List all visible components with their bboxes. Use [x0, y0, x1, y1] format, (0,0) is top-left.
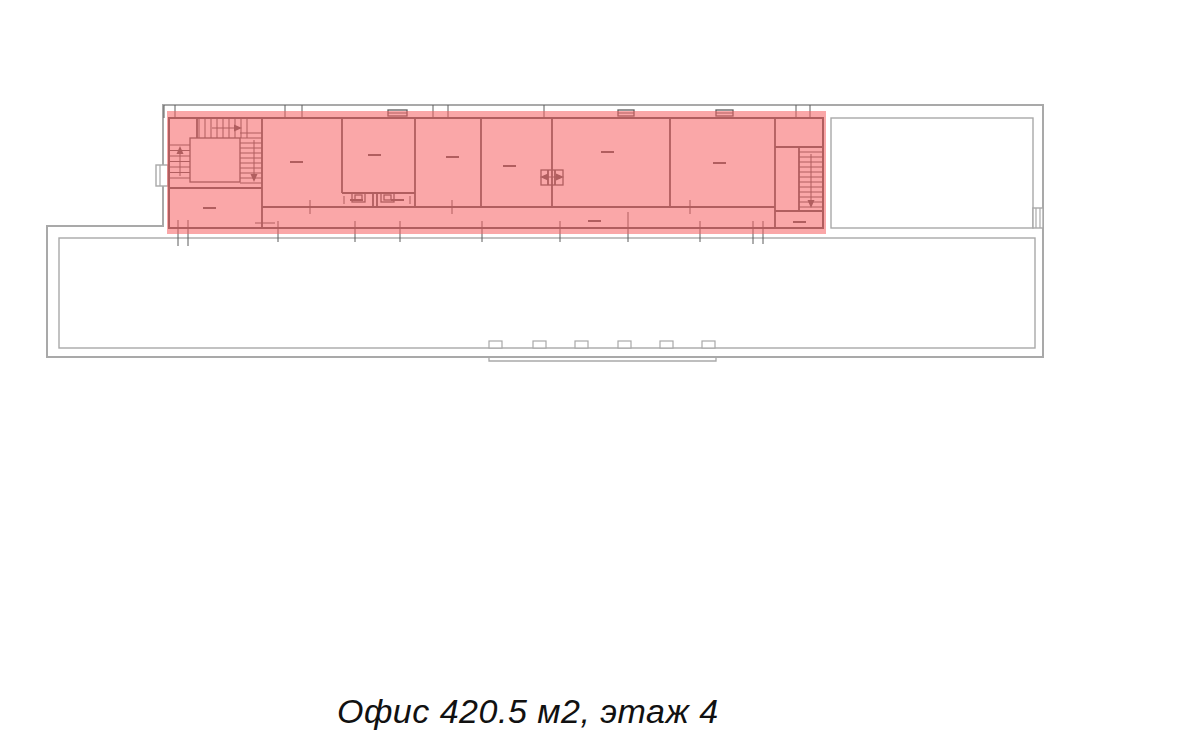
facade-notch [702, 341, 715, 348]
adjacent-room [831, 118, 1033, 228]
facade-notch [618, 341, 631, 348]
left-wall-bay [156, 165, 168, 186]
facade-notch [575, 341, 588, 348]
facade-notch [533, 341, 546, 348]
right-wall-window [1033, 208, 1043, 228]
facade-notch [489, 341, 502, 348]
facade-notch [660, 341, 673, 348]
floor-plan-page: Офис 420.5 м2, этаж 4 [0, 0, 1200, 745]
plan-caption: Офис 420.5 м2, этаж 4 [337, 692, 719, 731]
lower-hall [59, 238, 1035, 348]
office-highlight-overlay [167, 111, 826, 234]
floor-plan [0, 0, 1200, 745]
